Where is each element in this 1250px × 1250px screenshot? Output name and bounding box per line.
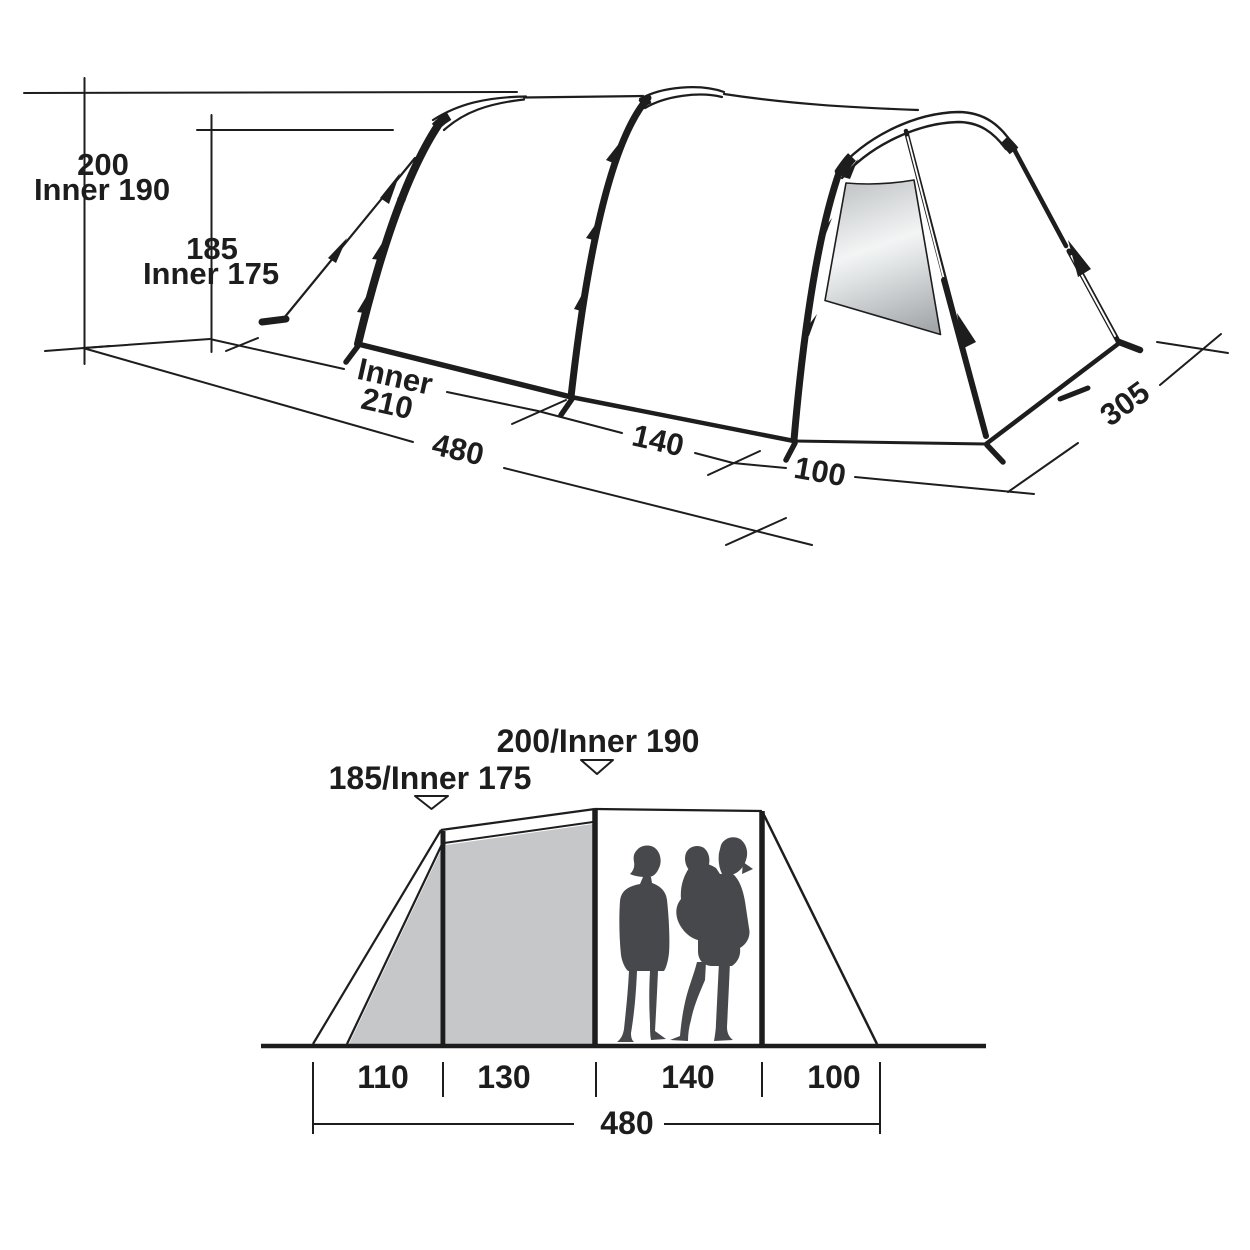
svg-text:140: 140 (661, 1059, 714, 1095)
svg-text:130: 130 (477, 1059, 530, 1095)
svg-text:Inner 175: Inner 175 (143, 256, 279, 291)
svg-text:185/Inner 175: 185/Inner 175 (329, 760, 532, 796)
svg-text:110: 110 (357, 1059, 409, 1095)
svg-text:200/Inner 190: 200/Inner 190 (497, 723, 700, 759)
svg-text:480: 480 (600, 1105, 653, 1141)
svg-text:Inner 190: Inner 190 (34, 172, 170, 207)
svg-text:100: 100 (807, 1059, 860, 1095)
